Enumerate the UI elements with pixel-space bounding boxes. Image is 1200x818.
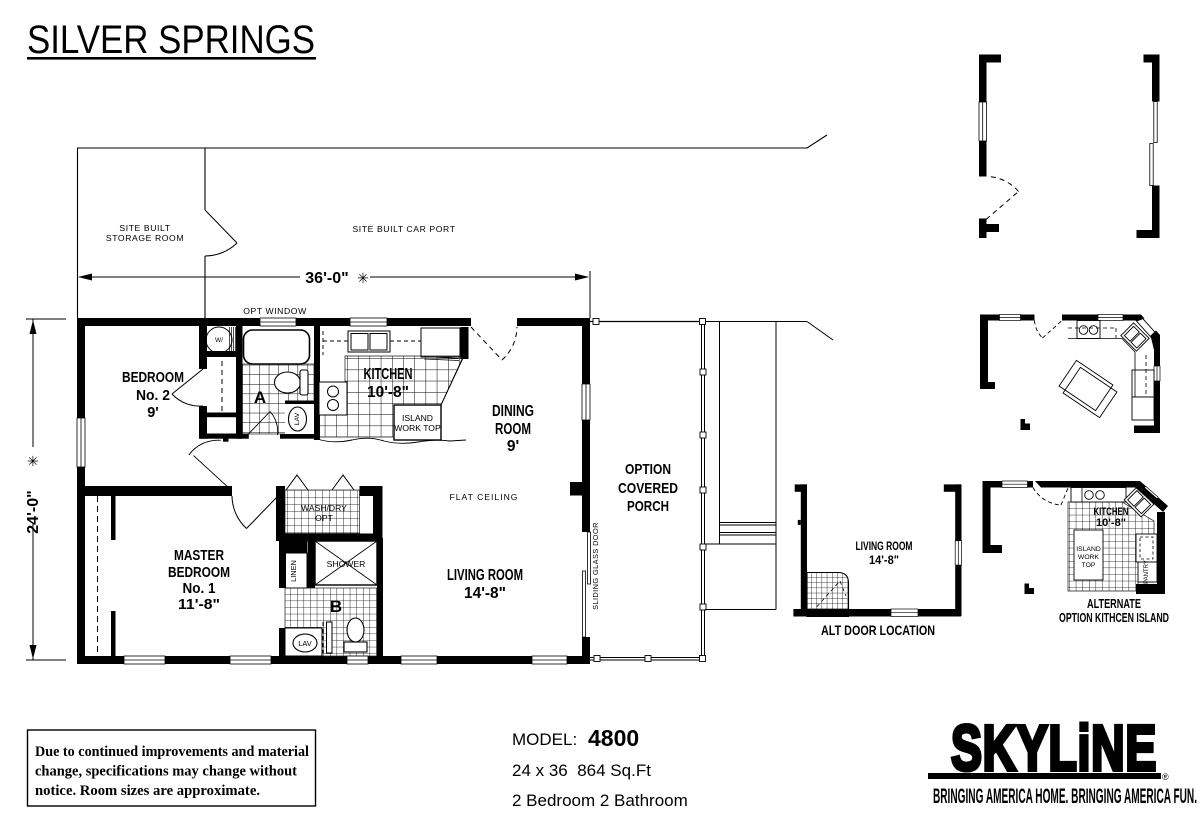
svg-text:OPTION: OPTION [625,461,671,478]
svg-text:KITCHEN: KITCHEN [364,366,413,383]
svg-text:OPT WINDOW: OPT WINDOW [243,306,307,316]
svg-text:No. 1: No. 1 [183,581,216,597]
svg-text:ISLAND: ISLAND [402,413,433,423]
svg-text:14'-8": 14'-8" [464,585,506,602]
svg-text:11'-8": 11'-8" [178,597,220,613]
svg-text:STORAGE ROOM: STORAGE ROOM [106,233,184,243]
svg-text:BEDROOM: BEDROOM [122,370,184,386]
svg-text:ALTERNATE: ALTERNATE [1087,597,1141,611]
svg-text:®: ® [1162,772,1169,782]
svg-text:BEDROOM: BEDROOM [168,565,230,581]
svg-text:LIVING ROOM: LIVING ROOM [447,567,523,584]
svg-text:14'-8": 14'-8" [869,553,899,567]
svg-text:MODEL:: MODEL: [512,730,577,749]
svg-text:change, specifications may cha: change, specifications may change withou… [35,764,297,780]
svg-text:✳: ✳ [357,270,369,286]
svg-text:10'-8": 10'-8" [367,384,409,401]
svg-text:OPTION KITHCEN ISLAND: OPTION KITHCEN ISLAND [1059,611,1169,625]
svg-text:notice. Room sizes are approxi: notice. Room sizes are approximate. [35,783,260,799]
svg-text:FLAT CEILING: FLAT CEILING [450,492,519,502]
svg-text:9': 9' [147,405,159,421]
svg-text:LAV: LAV [298,639,311,648]
svg-text:PANTRY: PANTRY [1144,560,1150,584]
svg-text:SLIDING GLASS DOOR: SLIDING GLASS DOOR [591,522,600,610]
svg-text:LINEN: LINEN [289,560,298,582]
svg-text:SITE BUILT: SITE BUILT [119,223,170,233]
svg-text:ALT DOOR LOCATION: ALT DOOR LOCATION [821,622,935,638]
svg-text:36'-0": 36'-0" [305,270,348,287]
svg-text:BRINGING AMERICA HOME. BRINGIN: BRINGING AMERICA HOME. BRINGING AMERICA … [933,785,1197,808]
svg-text:COVERED: COVERED [618,480,678,497]
svg-text:24 x 36 864 Sq.Ft: 24 x 36 864 Sq.Ft [512,761,651,780]
svg-text:2 Bedroom 2 Bathroom: 2 Bedroom 2 Bathroom [512,791,688,810]
svg-text:A: A [254,388,266,407]
svg-text:10'-8": 10'-8" [1096,517,1126,529]
svg-text:WORK TOP: WORK TOP [394,423,441,433]
svg-text:4800: 4800 [588,725,639,751]
svg-text:PORCH: PORCH [627,498,669,515]
svg-text:ISLAND: ISLAND [1076,546,1101,553]
svg-text:TOP: TOP [1082,562,1096,569]
svg-text:B: B [330,597,342,616]
svg-text:24'-0": 24'-0" [25,490,42,533]
svg-text:9': 9' [507,438,519,455]
svg-text:No. 2: No. 2 [136,388,170,404]
svg-text:✳: ✳ [25,455,41,467]
svg-text:WORK: WORK [1078,554,1100,561]
svg-text:OPT: OPT [315,513,333,523]
svg-text:SITE BUILT CAR PORT: SITE BUILT CAR PORT [352,224,455,234]
svg-text:SHOWER: SHOWER [327,559,366,569]
svg-text:LIVING ROOM: LIVING ROOM [856,539,913,553]
svg-text:MASTER: MASTER [174,548,224,564]
svg-text:LAV: LAV [294,412,301,425]
svg-text:DINING: DINING [492,403,534,420]
svg-text:W/: W/ [215,337,223,344]
svg-text:ROOM: ROOM [495,421,531,438]
svg-text:SILVER SPRINGS: SILVER SPRINGS [27,18,315,62]
svg-text:WASH/DRY: WASH/DRY [301,503,347,513]
svg-text:Due to continued improvements: Due to continued improvements and materi… [35,744,309,760]
